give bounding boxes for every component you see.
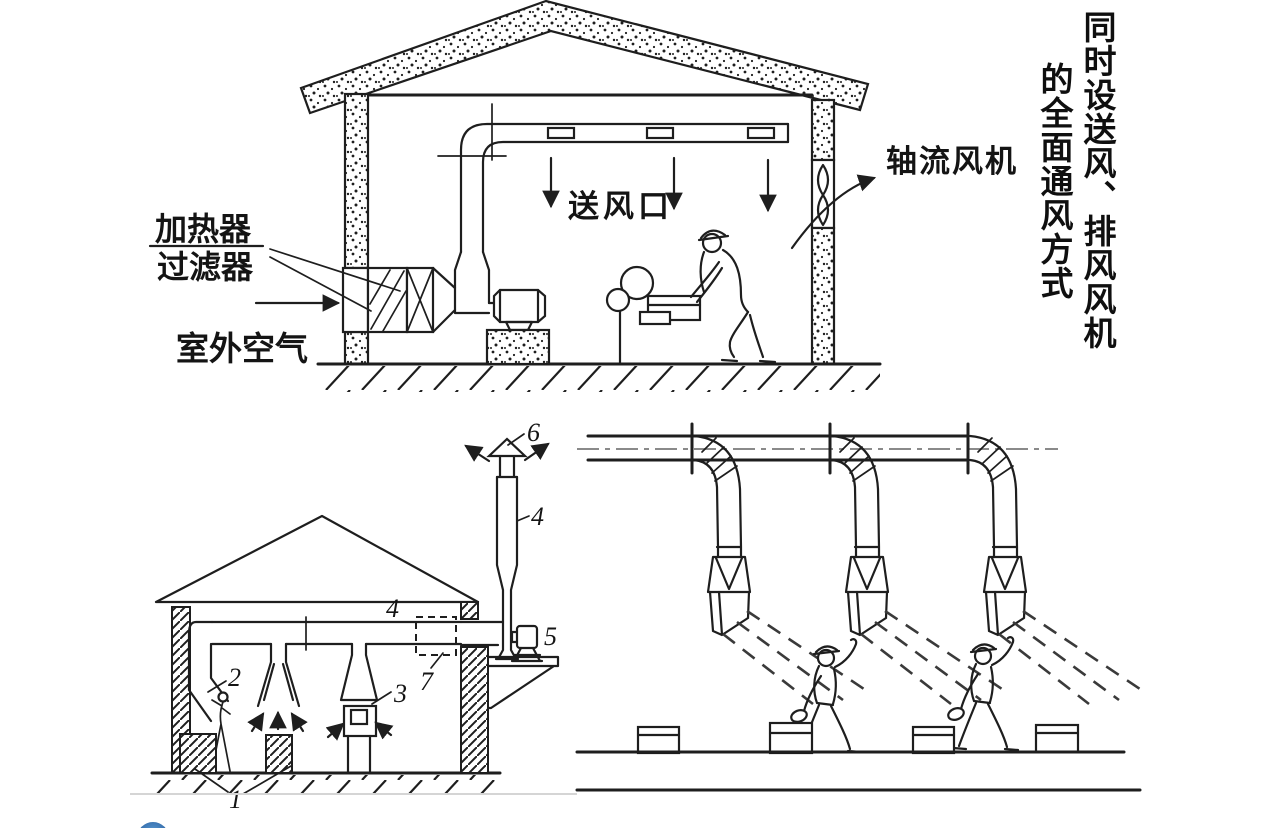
figure-title-line1: 同时设送风、排风风机	[1079, 10, 1114, 350]
bottom-left-building-section: 1 2 3 4 4 5 6 7	[152, 418, 558, 814]
transition-cone	[433, 268, 455, 332]
canopy-hood	[252, 644, 303, 773]
furnace-hood	[328, 644, 391, 772]
exhaust-arrow	[466, 446, 489, 461]
callout-4-duct: 4	[386, 594, 399, 623]
work-pedestal	[180, 734, 216, 773]
right-wall-upper	[461, 602, 478, 619]
roof-outline	[156, 516, 478, 602]
callout-4-stack: 4	[531, 502, 544, 531]
label-outdoor-air: 室外空气	[176, 330, 308, 367]
left-wall-base	[345, 332, 368, 364]
right-wall-lower	[812, 228, 834, 364]
label-filter: 过滤器	[157, 249, 254, 285]
label-heater: 加热器	[155, 211, 252, 247]
rain-cap	[489, 439, 525, 456]
scoop	[790, 708, 809, 724]
callout-2: 2	[228, 663, 241, 692]
outlet-nozzle	[710, 592, 749, 635]
right-wall-upper	[812, 100, 834, 160]
callout-6: 6	[527, 418, 540, 447]
bottom-right-air-shower-diagram	[577, 424, 1140, 790]
ventilation-diagram: 加热器 过滤器 室外空气 送风口 轴流风机	[0, 0, 1266, 828]
support-bracket	[488, 657, 558, 708]
callout-5: 5	[544, 622, 557, 651]
right-wall-lower	[461, 647, 488, 773]
supply-outlet	[647, 128, 673, 138]
air-shower-drop	[968, 424, 1140, 704]
floor-hatch	[318, 366, 880, 392]
callout-3: 3	[393, 679, 407, 708]
label-axial-fan: 轴流风机	[886, 144, 1018, 179]
supply-fan-motor	[487, 290, 549, 364]
label-supply-outlet: 送风口	[568, 189, 673, 224]
worker-figure	[691, 231, 775, 362]
callout-7: 7	[420, 667, 434, 696]
left-wall	[345, 94, 368, 268]
air-shower-drop	[692, 424, 864, 704]
supply-outlet	[748, 128, 774, 138]
exhaust-fan	[512, 626, 542, 661]
motor-pedestal	[487, 330, 549, 364]
logo-circle	[137, 822, 169, 828]
wall-inlet-opening	[343, 268, 368, 332]
floor-hatch	[152, 775, 500, 795]
air-stream-dashes	[723, 611, 864, 704]
supply-outlet	[548, 128, 574, 138]
worker-shoveling	[947, 637, 1018, 750]
scanned-diagram-page: 加热器 过滤器 室外空气 送风口 轴流风机	[0, 0, 1266, 828]
callout-1: 1	[229, 785, 242, 814]
top-building-section: 加热器 过滤器 室外空气 送风口 轴流风机	[150, 1, 1018, 392]
figure-title-line2: 的全面通风方式	[1036, 62, 1071, 300]
workbench-machine	[607, 267, 700, 363]
duct-through-wall	[461, 622, 503, 645]
top-diagram-labels: 加热器 过滤器 室外空气 送风口 轴流风机	[150, 144, 1018, 367]
